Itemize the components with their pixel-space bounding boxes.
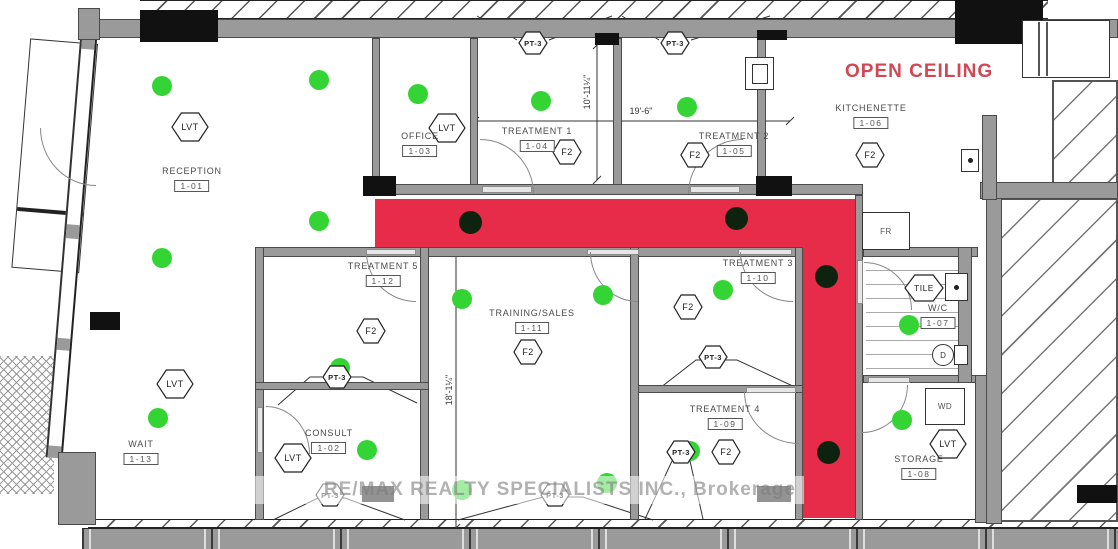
floor-drain: D [932, 344, 954, 366]
dimension-label: 19'-6" [628, 106, 655, 116]
room-label-reception: RECEPTION1-01 [162, 166, 222, 194]
wall [986, 198, 1002, 524]
kitchen-sink [961, 149, 979, 172]
room-number: 1-13 [123, 453, 158, 465]
door-opening [868, 377, 910, 383]
room-label-treatment-4: TREATMENT 41-09 [690, 404, 760, 432]
closet-frame-line [1046, 22, 1048, 76]
column [757, 30, 787, 40]
wall [470, 38, 478, 188]
room-label-consult: CONSULT1-02 [305, 428, 353, 456]
light-dot-green [452, 289, 472, 309]
fridge: FR [862, 212, 910, 250]
room-label-w-c: W/C1-07 [920, 303, 955, 331]
finish-tag-pt-3: PT-3 [698, 345, 728, 369]
room-name: TRAINING/SALES [489, 308, 575, 318]
light-dot-green [408, 84, 428, 104]
dark-dot [817, 441, 840, 464]
finish-tag-f2: F2 [855, 142, 885, 168]
finish-tag-f2: F2 [356, 318, 386, 344]
room-number: 1-06 [853, 117, 888, 129]
room-name: TREATMENT 5 [348, 261, 418, 271]
light-dot-green [309, 70, 329, 90]
finish-tag-lvt: LVT [156, 369, 194, 399]
room-number: 1-07 [920, 317, 955, 329]
light-dot-green [357, 440, 377, 460]
watermark-band: RE/MAX REALTY SPECIALISTS INC., Brokerag… [112, 476, 804, 504]
finish-tag-pt-3: PT-3 [666, 440, 696, 464]
door-opening [257, 407, 263, 453]
light-dot-green [593, 285, 613, 305]
dimension-label: 10'-11¼" [582, 73, 592, 112]
room-name: TREATMENT 2 [699, 131, 769, 141]
room-name: TREATMENT 1 [502, 126, 572, 136]
dark-dot [815, 265, 838, 288]
closet-frame-line [1038, 22, 1040, 76]
room-number: 1-01 [174, 180, 209, 192]
room-label-training-sales: TRAINING/SALES1-11 [489, 308, 575, 336]
column [90, 312, 120, 330]
room-name: OFFICE [401, 131, 439, 141]
light-dot-green [148, 408, 168, 428]
finish-tag-pt-3: PT-3 [660, 31, 690, 55]
room-number: 1-12 [365, 275, 400, 287]
floor-plan: FRWDDLVTLVTLVTLVTLVTF2F2F2F2F2F2F2PT-3PT… [0, 0, 1118, 549]
light-dot-green [892, 410, 912, 430]
room-label-treatment-2: TREATMENT 21-05 [699, 131, 769, 159]
room-number: 1-10 [740, 272, 775, 284]
bottom-window-band [82, 528, 1118, 549]
wall [980, 182, 1118, 199]
washer-dryer: WD [925, 388, 965, 425]
room-name: TREATMENT 3 [723, 258, 793, 268]
wc-sink [945, 273, 968, 301]
finish-tag-tile: TILE [904, 274, 944, 302]
wall [58, 452, 96, 525]
column [1077, 485, 1117, 503]
wall [255, 247, 803, 257]
dark-dot [725, 207, 748, 230]
room-label-treatment-3: TREATMENT 31-10 [723, 258, 793, 286]
room-number: 1-04 [519, 140, 554, 152]
finish-tag-lvt: LVT [171, 112, 209, 142]
toilet: D [932, 343, 960, 365]
watermark-text: RE/MAX REALTY SPECIALISTS INC., Brokerag… [324, 479, 804, 501]
room-label-treatment-5: TREATMENT 51-12 [348, 261, 418, 289]
dimension-label: 18'-1¼" [444, 373, 454, 407]
room-name: TREATMENT 4 [690, 404, 760, 414]
room-name: W/C [920, 303, 955, 313]
room-number: 1-08 [901, 468, 936, 480]
highlight-corridor-horizontal [375, 199, 855, 247]
column [595, 33, 619, 45]
room-label-treatment-1: TREATMENT 11-04 [502, 126, 572, 154]
room-number: 1-02 [311, 442, 346, 454]
light-dot-green [152, 76, 172, 96]
room-label-office: OFFICE1-03 [401, 131, 439, 159]
column [140, 10, 218, 42]
light-dot-green [899, 315, 919, 335]
open-ceiling-label: OPEN CEILING [845, 61, 993, 83]
finish-tag-pt-3: PT-3 [518, 31, 548, 55]
finish-tag-f2: F2 [673, 294, 703, 320]
light-dot-green [677, 97, 697, 117]
room-name: KITCHENETTE [835, 103, 906, 113]
room-number: 1-05 [716, 145, 751, 157]
light-dot-green [531, 91, 551, 111]
wall [78, 8, 100, 40]
room-label-storage: STORAGE1-08 [894, 454, 943, 482]
wall [613, 38, 622, 188]
room-number: 1-09 [707, 418, 742, 430]
light-dot-green [309, 211, 329, 231]
room-label-kitchenette: KITCHENETTE1-06 [835, 103, 906, 131]
room-name: STORAGE [894, 454, 943, 464]
room-number: 1-11 [515, 322, 549, 334]
room-label-wait: WAIT1-13 [123, 439, 158, 467]
room-number: 1-03 [402, 145, 437, 157]
light-dot-green [152, 248, 172, 268]
room-name: CONSULT [305, 428, 353, 438]
door-opening [857, 260, 863, 304]
wall-panel [745, 57, 774, 90]
finish-tag-f2: F2 [711, 439, 741, 465]
finish-tag-f2: F2 [513, 339, 543, 365]
room-name: RECEPTION [162, 166, 222, 176]
wall [982, 115, 997, 200]
room-name: WAIT [123, 439, 158, 449]
finish-tag-pt-3: PT-3 [322, 365, 352, 389]
closet-top-right [1022, 20, 1110, 78]
column [756, 176, 792, 196]
wall [372, 38, 380, 188]
column [363, 176, 396, 196]
dark-dot [459, 211, 482, 234]
